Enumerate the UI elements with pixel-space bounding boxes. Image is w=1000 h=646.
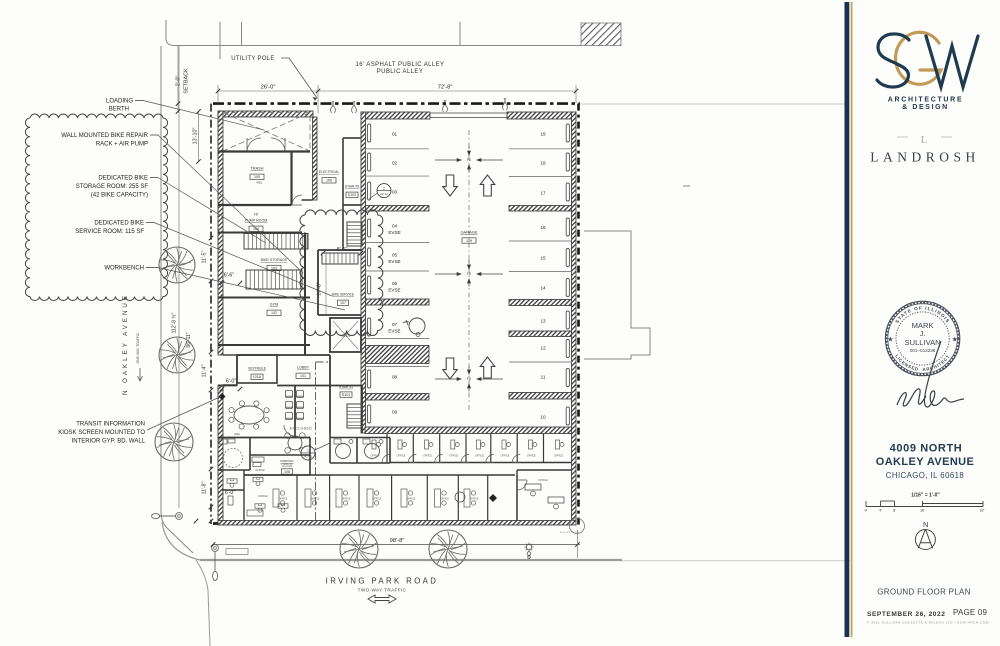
svg-text:& DESIGN: & DESIGN	[902, 104, 949, 111]
svg-text:EVSE: EVSE	[388, 259, 400, 264]
svg-text:TRANSIT INFORMATION: TRANSIT INFORMATION	[76, 422, 145, 428]
svg-text:RACK + AIR PUMP: RACK + AIR PUMP	[96, 142, 148, 148]
svg-text:STORAGE ROOM: 255 SF: STORAGE ROOM: 255 SF	[76, 184, 149, 190]
svg-text:OFFICE: OFFICE	[373, 498, 382, 501]
svg-text:15: 15	[540, 256, 546, 261]
svg-text:07: 07	[392, 322, 398, 327]
svg-text:S101: S101	[342, 393, 350, 397]
svg-text:8': 8'	[893, 509, 896, 513]
svg-text:STAIR #1: STAIR #1	[339, 385, 353, 389]
svg-text:BERTH: BERTH	[109, 107, 129, 113]
svg-text:PUBLIC ALLEY: PUBLIC ALLEY	[377, 69, 424, 75]
svg-text:FD: FD	[467, 377, 472, 381]
svg-text:01: 01	[392, 132, 398, 137]
svg-text:EVSE: EVSE	[388, 287, 400, 292]
svg-text:6'-6": 6'-6"	[224, 273, 234, 279]
svg-text:12: 12	[540, 346, 546, 351]
svg-text:A2-11: A2-11	[380, 192, 388, 196]
svg-text:PAGE 09: PAGE 09	[953, 608, 988, 617]
svg-text:1/16" = 1'-0": 1/16" = 1'-0"	[911, 493, 940, 499]
svg-text:OFFICE: OFFICE	[311, 498, 320, 501]
svg-text:112'-8 ½": 112'-8 ½"	[171, 312, 178, 333]
svg-text:4': 4'	[879, 509, 882, 513]
svg-text:6'-0": 6'-0"	[225, 490, 235, 496]
svg-text:A1 SLOPE 2% MIN: A1 SLOPE 2% MIN	[560, 531, 579, 534]
svg-text:WORKBENCH: WORKBENCH	[104, 266, 144, 272]
svg-text:11'-8": 11'-8"	[202, 481, 208, 494]
svg-text:14: 14	[540, 286, 546, 291]
svg-text:INTERIOR GYP. BD. WALL: INTERIOR GYP. BD. WALL	[72, 439, 146, 445]
svg-text:OFFICE: OFFICE	[255, 468, 265, 472]
svg-text:OFFICE: OFFICE	[470, 498, 479, 501]
svg-text:N OAKLEY AVENUE: N OAKLEY AVENUE	[122, 295, 129, 395]
svg-text:17: 17	[540, 191, 546, 196]
svg-text:OFFICE: OFFICE	[475, 455, 484, 458]
svg-text:OFFICE: OFFICE	[501, 455, 510, 458]
svg-text:16: 16	[540, 225, 546, 230]
svg-text:19: 19	[540, 132, 546, 137]
svg-text:08: 08	[392, 375, 398, 380]
svg-text:OFFICE: OFFICE	[527, 455, 536, 458]
svg-text:108: 108	[284, 470, 290, 474]
svg-text:BIKE SERVICE: BIKE SERVICE	[332, 293, 354, 297]
svg-text:OFFICE: OFFICE	[449, 455, 458, 458]
svg-text:★: ★	[887, 336, 893, 344]
svg-text:L: L	[921, 134, 928, 146]
svg-text:GROUND FLOOR PLAN: GROUND FLOOR PLAN	[877, 588, 971, 597]
svg-text:LOADING: LOADING	[106, 99, 133, 105]
svg-text:ELECTRICAL: ELECTRICAL	[319, 170, 340, 174]
svg-text:EXCLUDED: EXCLUDED	[290, 427, 313, 431]
svg-text:105: 105	[254, 175, 260, 179]
svg-text:13: 13	[540, 319, 546, 324]
svg-text:0': 0'	[865, 509, 868, 513]
svg-text:EVSE: EVSE	[388, 230, 400, 235]
svg-text:UTILITY POLE: UTILITY POLE	[231, 56, 275, 62]
svg-text:11'-5": 11'-5"	[202, 250, 208, 263]
svg-text:FD: FD	[467, 272, 472, 276]
svg-text:001–013238: 001–013238	[910, 348, 936, 353]
svg-text:ARCHITECTURE: ARCHITECTURE	[888, 97, 964, 104]
svg-text:101A: 101A	[253, 375, 262, 379]
svg-text:1: 1	[307, 449, 309, 453]
svg-text:OAKLEY AVENUE: OAKLEY AVENUE	[876, 456, 975, 468]
svg-text:★: ★	[952, 336, 958, 344]
svg-text:FD: FD	[254, 213, 259, 217]
svg-text:03: 03	[392, 190, 398, 195]
svg-text:98'-8": 98'-8"	[390, 538, 405, 544]
svg-text:S102: S102	[348, 193, 356, 197]
svg-text:KIOSK SCREEN MOUNTED TO: KIOSK SCREEN MOUNTED TO	[58, 430, 145, 436]
svg-text:OFFICE: OFFICE	[538, 478, 548, 482]
svg-text:OFFICE: OFFICE	[397, 455, 406, 458]
svg-text:86'-11": 86'-11"	[186, 332, 192, 347]
svg-text:VESTIBULE: VESTIBULE	[248, 367, 267, 371]
svg-text:10: 10	[540, 415, 546, 420]
svg-text:103: 103	[271, 266, 277, 270]
svg-text:09: 09	[392, 410, 398, 415]
svg-text:16' ASPHALT PUBLIC ALLEY: 16' ASPHALT PUBLIC ALLEY	[356, 62, 445, 68]
svg-text:OFFICE: OFFICE	[282, 463, 293, 467]
svg-text:SETBACK: SETBACK	[184, 68, 190, 94]
svg-text:LANDROSH: LANDROSH	[870, 150, 980, 165]
svg-text:101: 101	[300, 374, 306, 378]
svg-text:STAIR #2: STAIR #2	[345, 185, 360, 189]
svg-text:OFFICE: OFFICE	[440, 498, 449, 501]
svg-text:6'-0": 6'-0"	[226, 379, 236, 385]
svg-text:ONE-WAY TRAFFIC: ONE-WAY TRAFFIC	[136, 332, 140, 364]
svg-text:26'-0": 26'-0"	[261, 85, 276, 91]
svg-text:05: 05	[392, 253, 398, 258]
svg-text:02: 02	[392, 161, 398, 166]
svg-text:DEDICATED BIKE: DEDICATED BIKE	[98, 176, 148, 182]
svg-text:32': 32'	[980, 509, 985, 513]
svg-text:TRASH: TRASH	[251, 167, 264, 171]
svg-text:BIKE STORAGE: BIKE STORAGE	[261, 258, 288, 262]
svg-text:04: 04	[392, 224, 398, 229]
svg-text:14'-0": 14'-0"	[317, 282, 323, 295]
svg-text:13'-10": 13'-10"	[193, 128, 199, 145]
svg-text:2'-0": 2'-0"	[176, 76, 182, 87]
svg-text:SEPTEMBER 26, 2022: SEPTEMBER 26, 2022	[867, 611, 945, 618]
svg-text:WALL MOUNTED BIKE REPAIR: WALL MOUNTED BIKE REPAIR	[61, 133, 148, 139]
svg-text:SULLIVAN: SULLIVAN	[905, 338, 941, 347]
svg-text:GYM: GYM	[270, 303, 279, 307]
svg-text:18: 18	[540, 161, 546, 166]
svg-text:ADA: ADA	[234, 432, 240, 436]
svg-text:OFFICE: OFFICE	[371, 455, 380, 458]
svg-text:© 2021 SULLIVAN GOULETTE & WIL: © 2021 SULLIVAN GOULETTE & WILSON LTD / …	[867, 621, 989, 625]
svg-text:107: 107	[340, 301, 346, 305]
svg-text:LOBBY: LOBBY	[297, 366, 310, 370]
svg-text:OFFICE: OFFICE	[554, 455, 563, 458]
svg-text:CHICAGO, IL 60618: CHICAGO, IL 60618	[886, 471, 964, 480]
svg-text:MARK: MARK	[912, 321, 934, 330]
svg-text:72'-8": 72'-8"	[438, 85, 453, 91]
svg-text:OFFICE: OFFICE	[342, 498, 351, 501]
svg-text:OFFICE: OFFICE	[258, 494, 268, 498]
svg-text:DEDICATED BIKE: DEDICATED BIKE	[94, 221, 144, 227]
svg-text:FD: FD	[467, 158, 472, 162]
svg-text:2: 2	[383, 186, 385, 190]
svg-text:11'-4": 11'-4"	[202, 364, 208, 377]
svg-text:16': 16'	[920, 509, 925, 513]
svg-text:OFFICE: OFFICE	[423, 455, 432, 458]
svg-text:N: N	[923, 520, 928, 529]
svg-text:11: 11	[541, 375, 546, 380]
svg-text:TWO-WAY TRAFFIC: TWO-WAY TRAFFIC	[358, 588, 407, 593]
svg-text:OFFICE: OFFICE	[407, 498, 416, 501]
svg-text:(42 BIKE CAPACITY): (42 BIKE CAPACITY)	[91, 193, 148, 199]
svg-text:4009 NORTH: 4009 NORTH	[890, 443, 963, 455]
svg-text:EVSE: EVSE	[388, 328, 400, 333]
svg-text:IRVING PARK ROAD: IRVING PARK ROAD	[326, 577, 439, 586]
svg-text:*FD: *FD	[256, 181, 262, 185]
svg-text:06: 06	[392, 281, 398, 286]
svg-text:SERVICE ROOM: 115 SF: SERVICE ROOM: 115 SF	[75, 229, 144, 235]
svg-text:102: 102	[271, 311, 277, 315]
svg-text:106: 106	[326, 179, 332, 183]
svg-text:OFFICE: OFFICE	[279, 498, 288, 501]
